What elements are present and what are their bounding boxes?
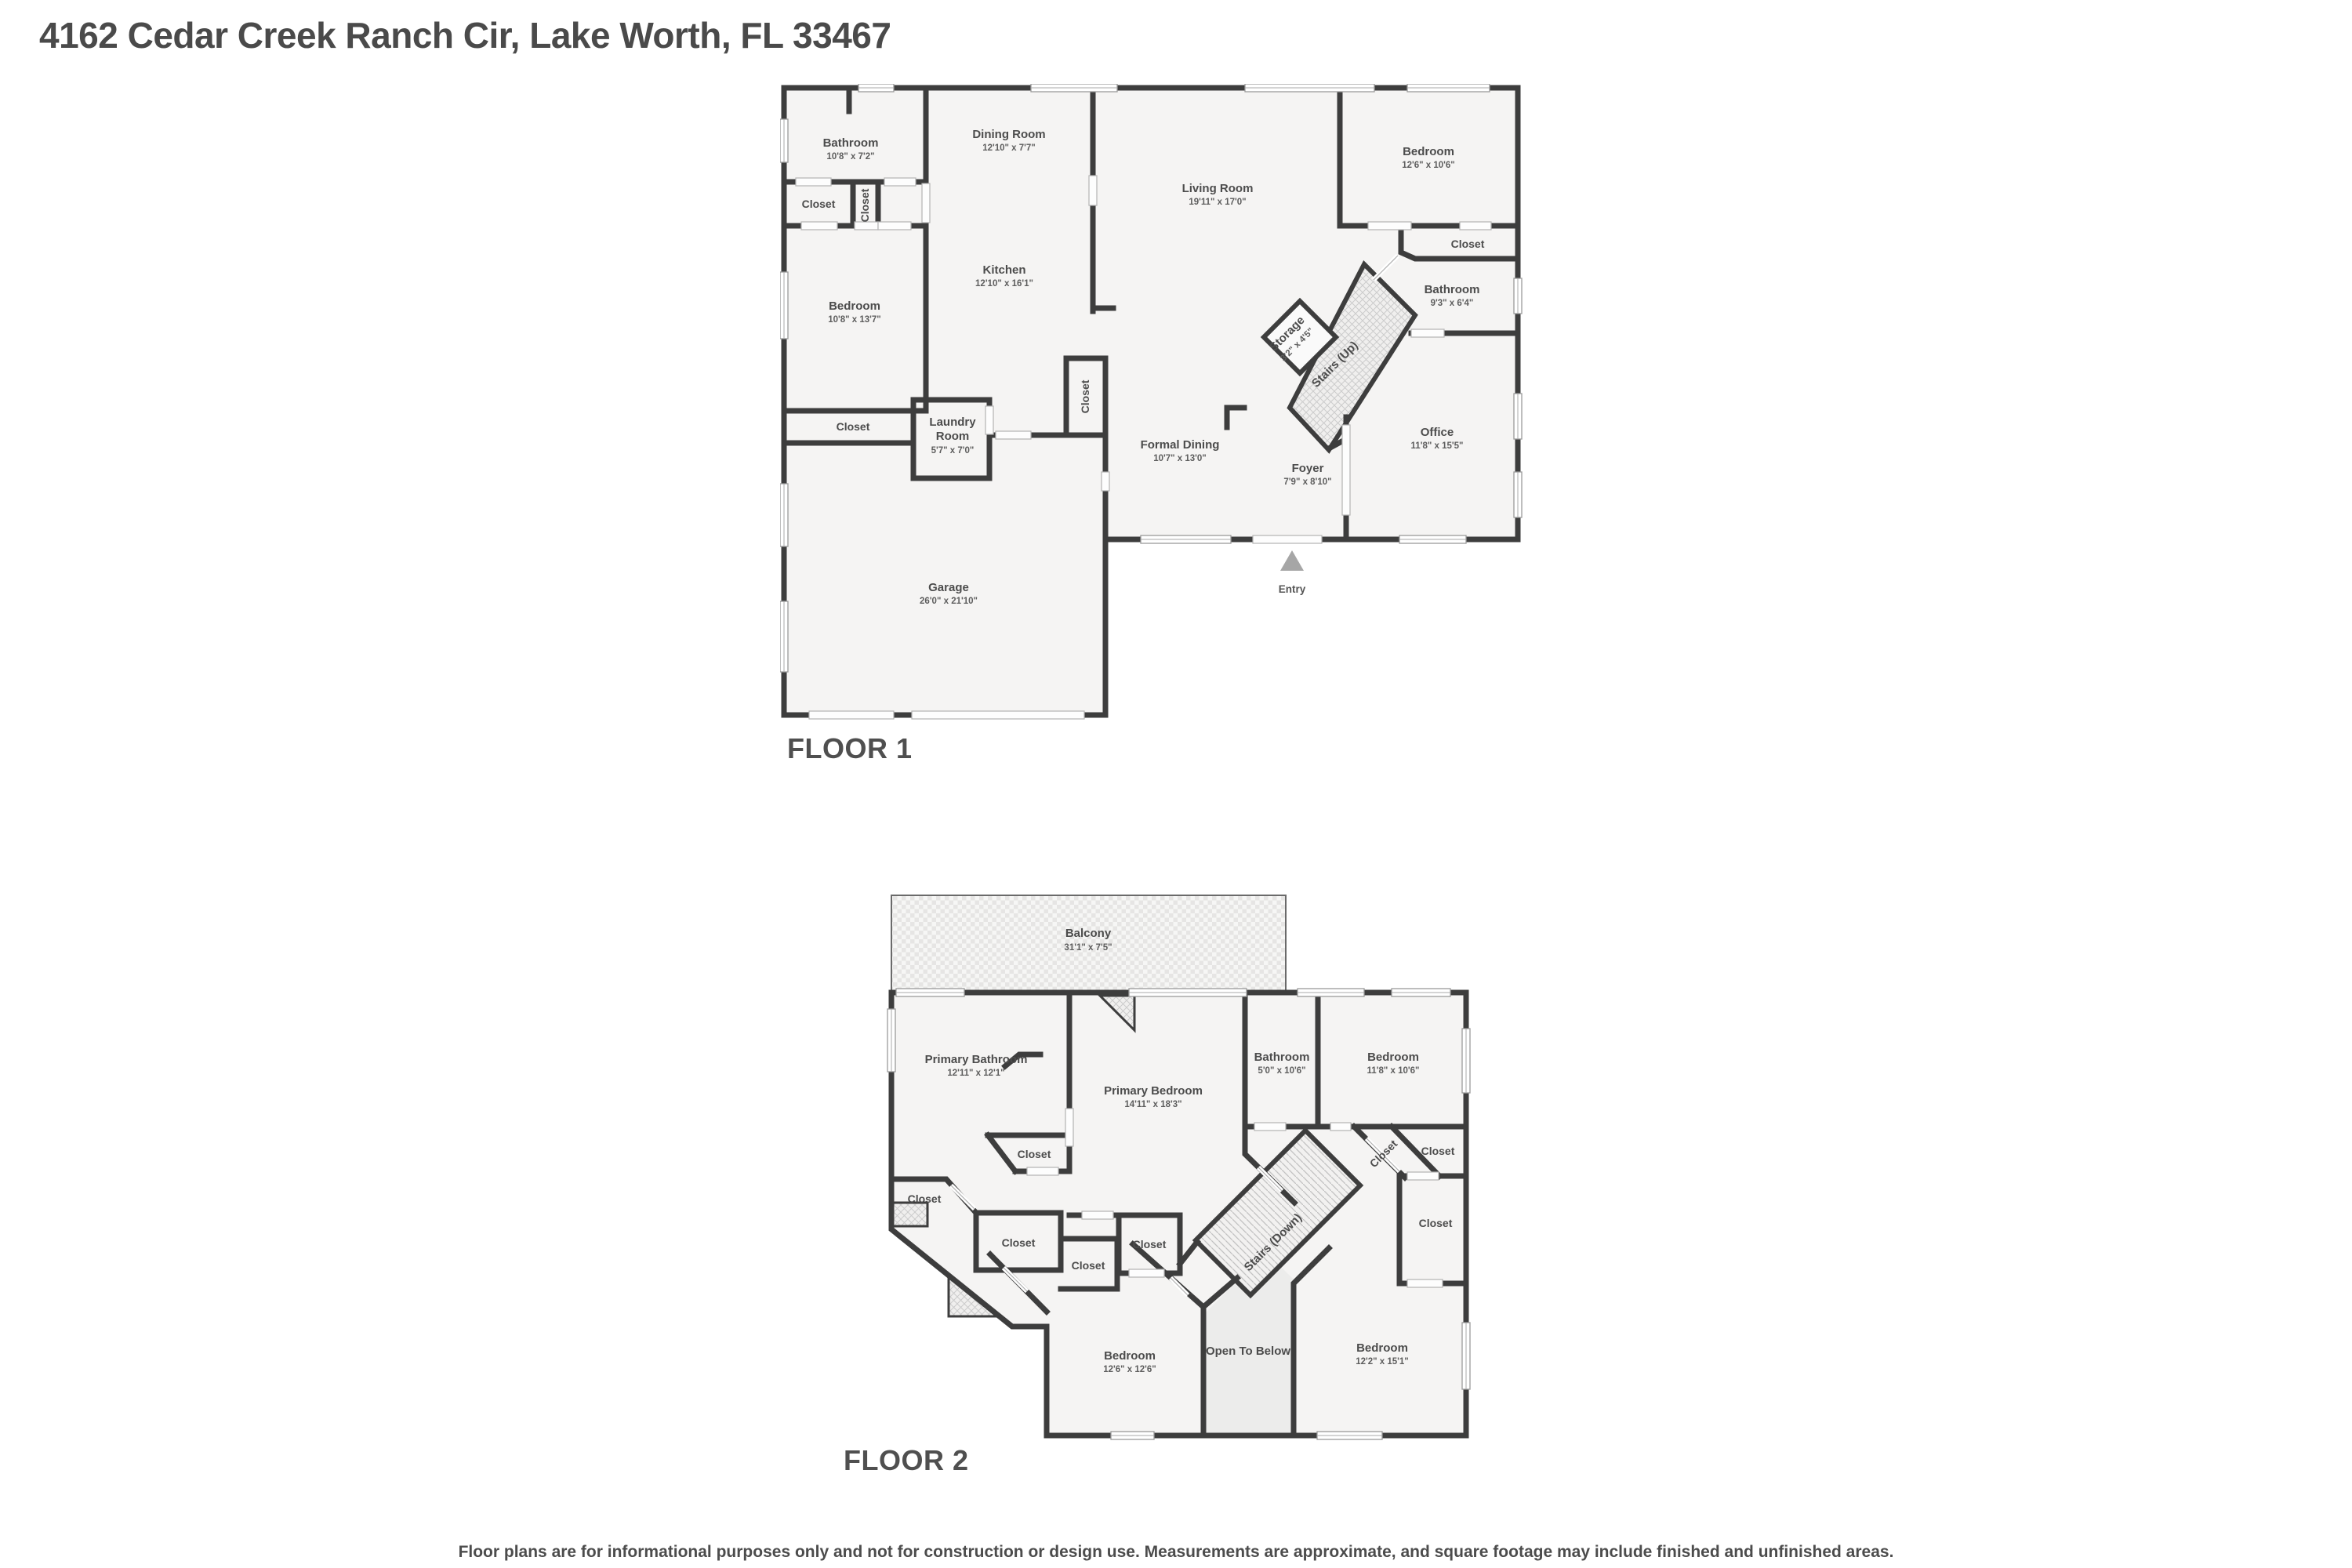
room-label-laundry-1: Laundry bbox=[929, 416, 976, 429]
room-label-foyer: Foyer bbox=[1292, 462, 1324, 475]
room-label-closet-hall-vertical: Closet bbox=[858, 188, 871, 222]
room-dims-dining: 12'10" x 7'7" bbox=[982, 143, 1036, 153]
room-label-bathroom2: Bathroom bbox=[1425, 283, 1480, 296]
room-label-formal-dining: Formal Dining bbox=[1141, 438, 1220, 452]
room-label-bathroom: Bathroom bbox=[1254, 1051, 1310, 1064]
room-label-primary-bedroom: Primary Bedroom bbox=[1104, 1084, 1203, 1098]
room-label-bedroom-right: Bedroom bbox=[1403, 145, 1454, 158]
room-dims-laundry: 5'7" x 7'0" bbox=[931, 446, 975, 456]
room-dims-primary-bathroom: 12'11" x 12'1" bbox=[947, 1069, 1004, 1078]
room-dims-bathroom2: 9'3" x 6'4" bbox=[1431, 299, 1474, 308]
floor1-entry-marker bbox=[1280, 550, 1304, 571]
room-dims-bathroom1: 10'8" x 7'2" bbox=[826, 152, 874, 162]
room-dims-bedroom-left: 10'8" x 13'7" bbox=[828, 315, 881, 325]
room-label-office: Office bbox=[1421, 426, 1454, 439]
room-label-closet-pb: Closet bbox=[1018, 1148, 1051, 1160]
room-label-garage: Garage bbox=[928, 581, 969, 594]
room-dims-bedroom-br: 12'2" x 15'1" bbox=[1356, 1357, 1409, 1367]
room-dims-formal-dining: 10'7" x 13'0" bbox=[1153, 454, 1207, 463]
room-label-laundry-2: Room bbox=[936, 430, 970, 443]
room-label-closet-mid: Closet bbox=[1079, 379, 1091, 413]
room-dims-living: 19'11" x 17'0" bbox=[1189, 198, 1246, 207]
room-label-balcony: Balcony bbox=[1065, 927, 1112, 940]
room-label-dining: Dining Room bbox=[972, 128, 1045, 141]
room-label-living: Living Room bbox=[1182, 182, 1254, 195]
room-label-closet-r1: Closet bbox=[1421, 1145, 1455, 1157]
room-dims-kitchen: 12'10" x 16'1" bbox=[975, 279, 1033, 289]
room-label-bedroom-br: Bedroom bbox=[1356, 1341, 1408, 1355]
room-label-closet-r2: Closet bbox=[1419, 1217, 1453, 1229]
page-title: 4162 Cedar Creek Ranch Cir, Lake Worth, … bbox=[39, 14, 891, 56]
room-label-closet-bedroom-left: Closet bbox=[837, 420, 870, 433]
room-dims-bathroom: 5'0" x 10'6" bbox=[1258, 1066, 1305, 1076]
room-dims-bedroom-bl: 12'6" x 12'6" bbox=[1103, 1365, 1156, 1374]
room-label-closet-pentagon: Closet bbox=[908, 1192, 942, 1205]
room-label-closet-mid: Closet bbox=[1133, 1238, 1167, 1250]
room-dims-office: 11'8" x 15'5" bbox=[1411, 441, 1464, 451]
room-dims-balcony: 31'1" x 7'5" bbox=[1064, 943, 1112, 953]
disclaimer-text: Floor plans are for informational purpos… bbox=[0, 1543, 2352, 1562]
room-label-primary-bathroom: Primary Bathroom bbox=[925, 1053, 1028, 1066]
room-label-closet-hall: Closet bbox=[802, 198, 836, 210]
entry-label: Entry bbox=[1279, 583, 1306, 595]
floor1-plan: Bathroom 10'8" x 7'2" Closet Closet Dini… bbox=[780, 84, 1525, 739]
room-dims-bedroom-tr: 11'8" x 10'6" bbox=[1367, 1066, 1420, 1076]
floor2-plan: Balcony 31'1" x 7'5" Primary Bathroom 12… bbox=[855, 887, 1490, 1491]
room-label-closet-bp: Closet bbox=[1002, 1236, 1036, 1249]
room-dims-bedroom-right: 12'6" x 10'6" bbox=[1402, 161, 1455, 170]
room-dims-primary-bedroom: 14'11" x 18'3" bbox=[1124, 1100, 1181, 1109]
room-label-bathroom1: Bathroom bbox=[823, 136, 879, 150]
floor2-heading: FLOOR 2 bbox=[844, 1444, 969, 1477]
room-label-bedroom-bl: Bedroom bbox=[1104, 1349, 1156, 1363]
room-label-open-below: Open To Below bbox=[1206, 1345, 1290, 1358]
room-label-bedroom-tr: Bedroom bbox=[1367, 1051, 1419, 1064]
entry-arrow-icon bbox=[1280, 550, 1304, 571]
room-dims-foyer: 7'9" x 8'10" bbox=[1283, 477, 1331, 487]
floor1-heading: FLOOR 1 bbox=[787, 732, 913, 765]
room-label-closet-small: Closet bbox=[1072, 1259, 1105, 1272]
room-dims-garage: 26'0" x 21'10" bbox=[920, 597, 978, 606]
room-label-kitchen: Kitchen bbox=[982, 263, 1025, 277]
room-label-bedroom-left: Bedroom bbox=[829, 299, 880, 313]
room-label-closet-bedroom-right: Closet bbox=[1451, 238, 1485, 250]
